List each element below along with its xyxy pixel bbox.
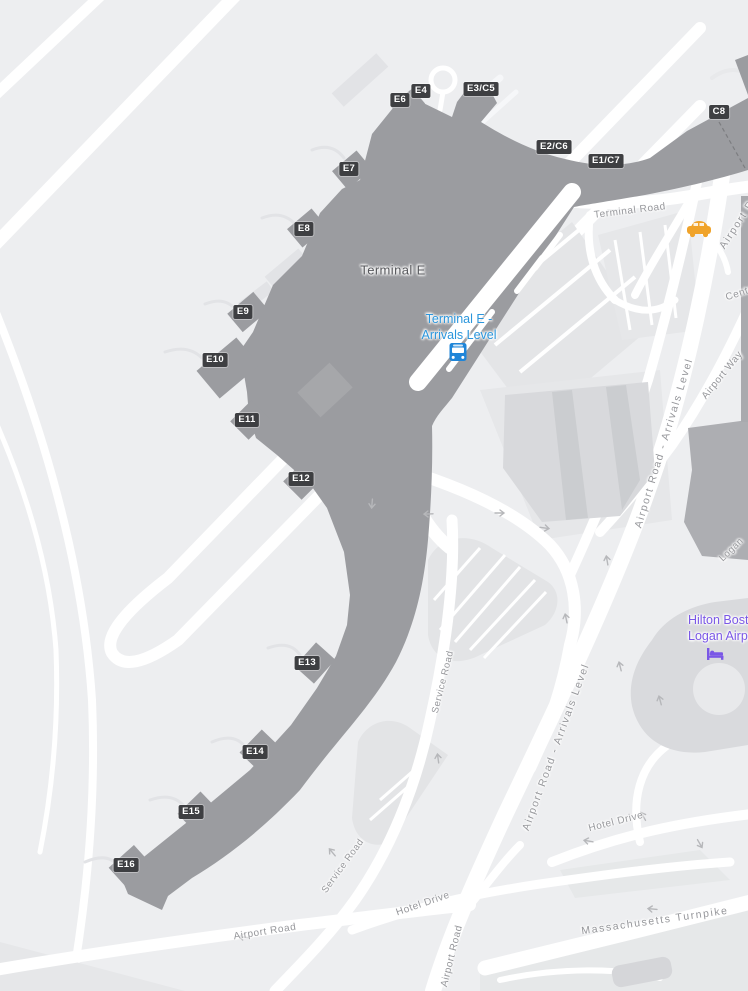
- gate-badge-e15: E15: [179, 805, 204, 819]
- gate-badge-e13: E13: [295, 656, 320, 670]
- gate-badge-e9: E9: [233, 305, 252, 319]
- bus-icon[interactable]: [450, 343, 467, 361]
- gate-badge-e1-c7: E1/C7: [589, 154, 624, 168]
- gate-badge-e7: E7: [339, 162, 358, 176]
- map-shapes: [0, 0, 748, 991]
- gate-badge-e14: E14: [243, 745, 268, 759]
- gate-badge-e2-c6: E2/C6: [537, 140, 572, 154]
- map-canvas[interactable]: E6 E4 E3/C5 E2/C6 E1/C7 C8 E7 E8 E9 E10 …: [0, 0, 748, 991]
- gate-badge-e11: E11: [235, 413, 259, 427]
- gate-badge-e3-c5: E3/C5: [464, 82, 499, 96]
- garage-strip: [741, 196, 748, 422]
- office-building: [684, 420, 748, 560]
- gate-badge-e6: E6: [390, 93, 409, 107]
- gate-badge-e12: E12: [289, 472, 314, 486]
- gate-badge-e10: E10: [203, 353, 228, 367]
- gate-badge-e16: E16: [114, 858, 139, 872]
- gate-badge-e8: E8: [294, 222, 313, 236]
- gate-badge-e4: E4: [411, 84, 430, 98]
- gate-badge-c8: C8: [709, 105, 729, 119]
- hilton-driveway: [693, 663, 745, 715]
